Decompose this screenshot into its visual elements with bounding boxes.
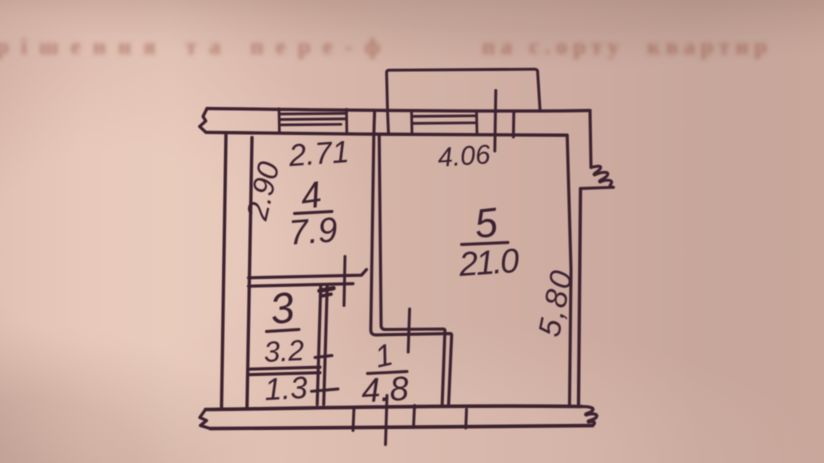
svg-text:5,80: 5,80 — [531, 266, 579, 340]
svg-text:4.06: 4.06 — [437, 139, 492, 173]
svg-text:21.0: 21.0 — [457, 242, 521, 284]
svg-text:2.71: 2.71 — [287, 134, 351, 173]
svg-text:7.9: 7.9 — [287, 210, 338, 252]
svg-text:1.3: 1.3 — [264, 370, 309, 407]
svg-text:4.8: 4.8 — [360, 370, 409, 410]
svg-text:5: 5 — [472, 199, 500, 247]
svg-text:3: 3 — [267, 284, 297, 335]
svg-text:3.2: 3.2 — [263, 335, 305, 369]
svg-text:2.90: 2.90 — [241, 158, 287, 224]
svg-text:1: 1 — [372, 337, 396, 375]
